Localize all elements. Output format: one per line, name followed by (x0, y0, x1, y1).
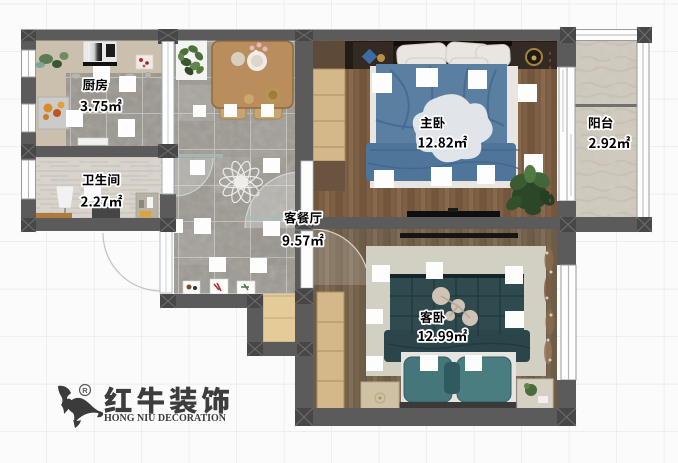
svg-text:R: R (82, 386, 88, 395)
svg-text:HONG NIU DECORATION: HONG NIU DECORATION (104, 413, 226, 424)
